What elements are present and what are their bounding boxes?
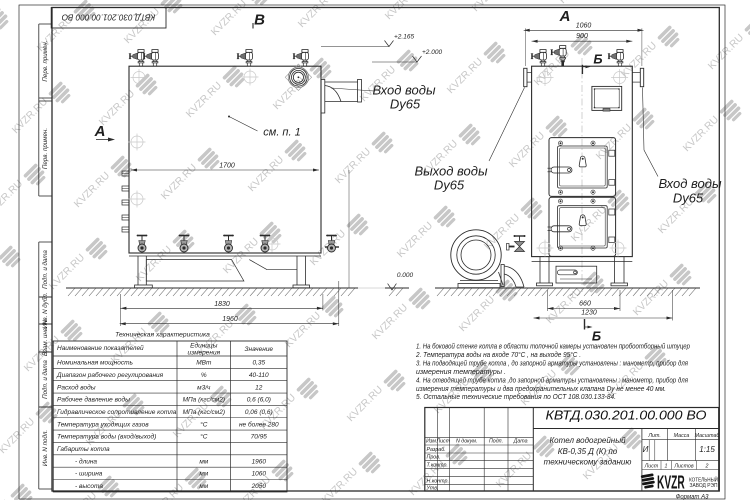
svg-text:2. Температура воды на входе: 2. Температура воды на входе 70°С , на в… bbox=[415, 351, 581, 359]
svg-text:Dy65: Dy65 bbox=[434, 178, 465, 193]
svg-text:1960: 1960 bbox=[252, 458, 267, 465]
svg-text:KVZR.RU: KVZR.RU bbox=[246, 154, 286, 194]
svg-text:Котел водогрейный: Котел водогрейный bbox=[549, 436, 626, 445]
svg-text:МВт: МВт bbox=[196, 360, 212, 367]
svg-text:KVZR.RU: KVZR.RU bbox=[619, 40, 659, 80]
svg-text:KVZR.RU: KVZR.RU bbox=[383, 0, 423, 22]
svg-text:KVZR.RU: KVZR.RU bbox=[706, 32, 746, 72]
svg-text:KVZR.RU: KVZR.RU bbox=[122, 6, 162, 46]
svg-text:KVZR.RU: KVZR.RU bbox=[631, 278, 671, 318]
svg-text:KVZR.RU: KVZR.RU bbox=[72, 170, 112, 210]
svg-text:Инв. N подл.: Инв. N подл. bbox=[42, 430, 49, 466]
svg-text:Листов: Листов bbox=[673, 463, 694, 469]
svg-text:1. На боковой стенке котла в: 1. На боковой стенке котла в области топ… bbox=[416, 343, 690, 351]
svg-text:Лит.: Лит. bbox=[647, 433, 660, 439]
svg-text:Т.контр.: Т.контр. bbox=[427, 463, 448, 469]
svg-text:Техническая характеристика: Техническая характеристика bbox=[115, 332, 210, 339]
svg-text:°С: °С bbox=[200, 433, 208, 441]
svg-text:мм: мм bbox=[199, 471, 208, 478]
svg-text:1060: 1060 bbox=[576, 22, 592, 29]
svg-text:Номинальная мощность: Номинальная мощность bbox=[57, 360, 134, 367]
svg-text:В: В bbox=[254, 12, 265, 29]
svg-text:%: % bbox=[201, 372, 207, 379]
svg-text:°С: °С bbox=[200, 420, 208, 428]
svg-text:техническому заданию: техническому заданию bbox=[544, 458, 632, 467]
svg-text:1830: 1830 bbox=[214, 301, 230, 308]
svg-text:1:15: 1:15 bbox=[699, 445, 715, 454]
svg-text:KVZR: KVZR bbox=[657, 472, 685, 492]
svg-text:KVZR.RU: KVZR.RU bbox=[445, 56, 485, 96]
svg-text:N докум.: N докум. bbox=[456, 439, 477, 445]
svg-text:Н.контр.: Н.контр. bbox=[427, 478, 449, 484]
svg-text:Температура воды (вход/выход): Температура воды (вход/выход) bbox=[57, 433, 156, 441]
svg-text:0,35: 0,35 bbox=[252, 360, 265, 367]
svg-text:4. На отводящей трубе котла ,: 4. На отводящей трубе котла ,до запорной… bbox=[416, 377, 688, 385]
svg-text:1060: 1060 bbox=[252, 471, 267, 478]
svg-text:KVZR.RU: KVZR.RU bbox=[681, 114, 721, 154]
svg-text:KVZR.RU: KVZR.RU bbox=[159, 162, 199, 202]
svg-text:2: 2 bbox=[705, 463, 709, 469]
svg-text:КВТД.030.201.00.000 ВО: КВТД.030.201.00.000 ВО bbox=[61, 12, 155, 21]
svg-text:Пров.: Пров. bbox=[427, 455, 441, 461]
svg-text:KVZR.RU: KVZR.RU bbox=[47, 252, 87, 292]
svg-text:KVZR.RU: KVZR.RU bbox=[333, 146, 373, 186]
svg-text:KVZR.RU: KVZR.RU bbox=[345, 384, 385, 424]
svg-text:+2.000: +2.000 bbox=[422, 49, 442, 56]
svg-text:ЗАВОД РЭП: ЗАВОД РЭП bbox=[690, 483, 718, 489]
svg-text:м3/ч: м3/ч bbox=[197, 384, 211, 391]
svg-text:1700: 1700 bbox=[219, 162, 235, 169]
svg-text:2050: 2050 bbox=[251, 483, 267, 490]
svg-text:Формат А3: Формат А3 bbox=[676, 494, 709, 500]
svg-text:3. На подводящей трубе котла: 3. На подводящей трубе котла , до запорн… bbox=[416, 360, 688, 368]
svg-text:Подп.: Подп. bbox=[489, 439, 503, 445]
svg-text:1960: 1960 bbox=[222, 316, 238, 323]
svg-text:0,6 (6,0): 0,6 (6,0) bbox=[247, 397, 271, 404]
svg-text:- ширина: - ширина bbox=[75, 471, 103, 478]
svg-text:KVZR.RU: KVZR.RU bbox=[457, 294, 497, 334]
svg-text:Перв. примен.: Перв. примен. bbox=[42, 40, 49, 81]
svg-text:Диапазон рабочего регулировани: Диапазон рабочего регулирования bbox=[56, 371, 164, 379]
svg-text:Выход воды: Выход воды bbox=[414, 164, 488, 179]
svg-text:Наименование показателей: Наименование показателей bbox=[57, 344, 144, 352]
svg-text:KVZR.RU: KVZR.RU bbox=[0, 416, 37, 456]
svg-text:Перв. примен.: Перв. примен. bbox=[42, 128, 49, 169]
svg-text:Рабочее давление воды: Рабочее давление воды bbox=[57, 396, 130, 404]
svg-text:не более 280: не более 280 bbox=[239, 420, 279, 428]
svg-text:Вход воды: Вход воды bbox=[372, 83, 436, 98]
svg-text:40-110: 40-110 bbox=[249, 372, 269, 379]
svg-text:5. Остальные технические треб: 5. Остальные технические требования по О… bbox=[416, 393, 616, 401]
svg-text:Единицы: Единицы bbox=[190, 342, 217, 350]
svg-text:KVZR.RU: KVZR.RU bbox=[320, 466, 360, 500]
svg-text:KVZR.RU: KVZR.RU bbox=[296, 0, 336, 30]
svg-text:Масса: Масса bbox=[674, 433, 690, 439]
svg-text:Разраб.: Разраб. bbox=[427, 447, 446, 453]
svg-text:Dy65: Dy65 bbox=[390, 97, 421, 112]
svg-text:Лист: Лист bbox=[435, 439, 450, 445]
svg-text:70/95: 70/95 bbox=[251, 434, 268, 441]
svg-text:МПа (кгс/см2): МПа (кгс/см2) bbox=[183, 397, 225, 404]
svg-text:KVZR.RU: KVZR.RU bbox=[0, 178, 25, 218]
svg-text:Б: Б bbox=[593, 52, 602, 67]
svg-text:- длина: - длина bbox=[75, 457, 97, 465]
svg-text:Изм: Изм bbox=[426, 439, 436, 445]
svg-text:Подп. и дата: Подп. и дата bbox=[42, 250, 49, 289]
svg-text:Подп. и дата: Подп. и дата bbox=[42, 360, 49, 399]
svg-text:KVZR.RU: KVZR.RU bbox=[569, 204, 609, 244]
svg-text:12: 12 bbox=[255, 384, 263, 391]
svg-text:Гидравлическое сопротивление к: Гидравлическое сопротивление котла bbox=[57, 408, 177, 416]
svg-text:Масштаб: Масштаб bbox=[695, 433, 721, 439]
svg-text:Лист: Лист bbox=[644, 463, 659, 469]
svg-text:Утв.: Утв. bbox=[427, 485, 439, 491]
svg-text:1230: 1230 bbox=[581, 310, 597, 317]
svg-text:KVZR.RU: KVZR.RU bbox=[395, 220, 435, 260]
svg-text:А: А bbox=[94, 123, 106, 140]
svg-text:900: 900 bbox=[576, 33, 588, 40]
svg-text:KVZR.RU: KVZR.RU bbox=[283, 310, 323, 350]
svg-text:Dy65: Dy65 bbox=[673, 191, 704, 206]
svg-text:Взам. инв. N: Взам. инв. N bbox=[42, 319, 49, 356]
svg-text:МПа (кгс/см2): МПа (кгс/см2) bbox=[183, 409, 225, 416]
svg-text:Вход воды: Вход воды bbox=[658, 176, 722, 191]
svg-text:измерения температуры .: измерения температуры . bbox=[416, 369, 506, 376]
svg-text:мм: мм bbox=[199, 458, 208, 465]
svg-text:0,06 (0,6): 0,06 (0,6) bbox=[245, 409, 273, 416]
svg-text:Значение: Значение bbox=[245, 346, 274, 353]
svg-text:Б: Б bbox=[592, 329, 601, 344]
svg-text:измерения: измерения bbox=[188, 350, 221, 357]
svg-text:мм: мм bbox=[199, 483, 208, 490]
svg-text:КВТД.030.201.00.000 ВО: КВТД.030.201.00.000 ВО bbox=[546, 408, 707, 423]
svg-text:KVZR.RU: KVZR.RU bbox=[184, 80, 224, 120]
svg-text:Температура уходящих газов: Температура уходящих газов bbox=[57, 420, 149, 428]
svg-text:КВ-0,35 Д (К) по: КВ-0,35 Д (К) по bbox=[558, 447, 618, 456]
svg-text:+2.165: +2.165 bbox=[394, 34, 414, 41]
svg-text:Дата: Дата bbox=[513, 439, 528, 445]
svg-text:измерения температуры и два пр: измерения температуры и два предохраните… bbox=[416, 385, 666, 393]
svg-text:Габариты котла: Габариты котла bbox=[57, 445, 110, 453]
svg-text:KVZR.RU: KVZR.RU bbox=[370, 302, 410, 342]
svg-text:KVZR.RU: KVZR.RU bbox=[544, 286, 584, 326]
svg-text:660: 660 bbox=[579, 301, 591, 308]
svg-text:- высота: - высота bbox=[75, 483, 103, 490]
svg-text:1: 1 bbox=[665, 463, 668, 469]
svg-text:0.000: 0.000 bbox=[397, 272, 414, 279]
svg-text:KVZR.RU: KVZR.RU bbox=[507, 130, 547, 170]
svg-text:А: А bbox=[559, 8, 571, 25]
svg-text:KVZR.RU: KVZR.RU bbox=[209, 0, 249, 38]
svg-text:Расход воды: Расход воды bbox=[57, 383, 96, 391]
svg-text:см. п. 1: см. п. 1 bbox=[263, 127, 300, 139]
svg-text:И: И bbox=[643, 445, 649, 454]
